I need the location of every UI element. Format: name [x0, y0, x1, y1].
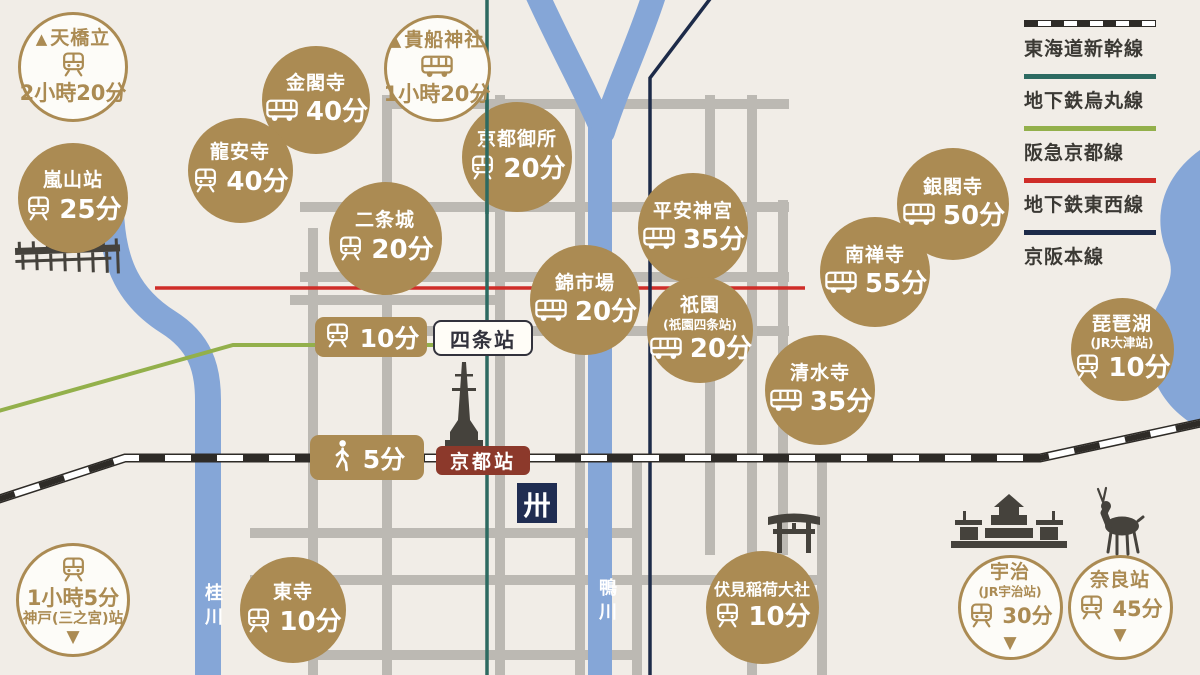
spot-heian: 平安神宮35分 [638, 173, 748, 283]
line-color-sample [1024, 178, 1156, 183]
legend: 東海道新幹線地下鉄烏丸線阪急京都線地下鉄東西線京阪本線 [1024, 20, 1156, 282]
spot-label: 伏見稲荷大社 [714, 581, 810, 599]
spot-kobe: 1小時5分神戸(三之宮)站▼ [16, 543, 130, 657]
shijo-station-label: 四条站 [433, 320, 533, 356]
spot-sublabel: (JR大津站) [1090, 336, 1153, 350]
train-icon [24, 195, 53, 226]
time-label: 20分 [371, 236, 433, 265]
spot-label: 東寺 [273, 582, 313, 603]
spot-sublabel: (JR宇治站) [978, 585, 1041, 599]
deer-icon [1098, 488, 1143, 554]
time-label: 10分 [1108, 354, 1170, 383]
spot-label: 平安神宮 [653, 201, 733, 222]
time-label: 10分 [748, 603, 810, 632]
time-label: 20分 [690, 335, 752, 364]
spot-amanohashidate: ▲天橋立2小時20分 [18, 12, 128, 122]
train-icon [191, 167, 220, 198]
legend-label: 地下鉄東西線 [1024, 190, 1156, 217]
train-icon [323, 322, 352, 353]
spot-sublabel: (祇園四条站) [663, 318, 737, 332]
time-label: 20分 [503, 155, 565, 184]
train-icon [468, 154, 497, 185]
kyoto-station-label: 京都站 [436, 446, 530, 475]
time-label: 35分 [683, 226, 745, 255]
down-triangle-icon: ▼ [1113, 627, 1126, 644]
katsura-river-label: 桂川 [199, 583, 225, 631]
spot-kifune: ▲貴船神社1小時20分 [384, 15, 491, 122]
spot-ryoanji: 龍安寺40分 [188, 118, 293, 223]
spot-label: 金閣寺 [286, 73, 346, 94]
torii-icon [768, 514, 820, 554]
time-label: 30分 [1002, 605, 1052, 629]
spot-label: 銀閣寺 [923, 177, 983, 198]
time-label: 10分 [279, 608, 341, 637]
shijo-train-time-badge: 10分 [315, 317, 427, 357]
kyoto-tower-icon [445, 362, 483, 448]
time-label: 1小時5分 [27, 587, 119, 611]
train-icon [1077, 594, 1106, 625]
time-label: 35分 [810, 388, 872, 417]
bus-icon [264, 97, 300, 127]
line-color-sample [1024, 74, 1156, 79]
temple-symbol: 卅 [517, 483, 557, 523]
spot-label: 二条城 [355, 210, 415, 231]
hankyu-line [0, 345, 500, 412]
spot-label: 南禅寺 [845, 245, 905, 266]
spot-label: 嵐山站 [43, 170, 103, 191]
bus-icon [641, 225, 677, 255]
mountain-icon: ▲ [390, 32, 403, 50]
spot-fushimi: 伏見稲荷大社10分 [706, 551, 819, 664]
kamo-river-right-branch [603, 0, 655, 132]
spot-label: 龍安寺 [210, 142, 270, 163]
legend-label: 阪急京都線 [1024, 138, 1156, 165]
time-label: 55分 [865, 270, 927, 299]
legend-label: 東海道新幹線 [1024, 34, 1156, 61]
spot-nijo: 二条城20分 [329, 182, 442, 295]
legend-label: 京阪本線 [1024, 242, 1156, 269]
kyoto-access-map: ▲天橋立2小時20分嵐山站25分金閣寺40分▲貴船神社1小時20分龍安寺40分京… [0, 0, 1200, 675]
time-label: 40分 [306, 98, 368, 127]
down-triangle-icon: ▼ [1003, 635, 1016, 652]
train-icon [336, 235, 365, 266]
legend-item-1: 東海道新幹線 [1024, 20, 1156, 61]
bus-icon [768, 387, 804, 417]
spot-uji: 宇治(JR宇治站)30分▼ [958, 555, 1063, 660]
spot-label: 宇治 [990, 562, 1030, 583]
spot-label: 琵琶湖 [1092, 314, 1152, 335]
spot-label: 錦市場 [555, 273, 615, 294]
time-label: 2小時20分 [20, 82, 127, 106]
spot-label: ▲貴船神社 [390, 30, 485, 51]
time-label: 50分 [943, 202, 1005, 231]
spot-nara: 奈良站45分▼ [1068, 555, 1173, 660]
time-label: 45分 [1112, 598, 1162, 622]
railway-line-sample [1024, 20, 1156, 27]
train-icon [59, 556, 88, 587]
line-color-sample [1024, 126, 1156, 131]
mountain-icon: ▲ [36, 30, 49, 48]
time-label: 25分 [59, 196, 121, 225]
legend-item-3: 阪急京都線 [1024, 126, 1156, 165]
train-icon [244, 607, 273, 638]
bus-icon [901, 201, 937, 231]
kyoto-walk-time-badge: 5分 [310, 435, 424, 480]
train-icon [1073, 353, 1102, 384]
kamo-river-label: 鴨川 [593, 578, 619, 626]
legend-label: 地下鉄烏丸線 [1024, 86, 1156, 113]
time-label: 40分 [226, 168, 288, 197]
spot-label: 京都御所 [477, 129, 557, 150]
time-label: 1小時20分 [384, 83, 491, 107]
spot-label: 奈良站 [1090, 570, 1150, 591]
spot-arashiyama: 嵐山站25分 [18, 143, 128, 253]
down-triangle-icon: ▼ [66, 629, 79, 646]
time-label: 20分 [575, 298, 637, 327]
bus-icon [648, 335, 684, 365]
spot-label: 祇園 [680, 295, 720, 316]
byodoin-temple-icon [951, 494, 1067, 548]
walk-time-label: 5分 [363, 440, 405, 476]
train-icon [713, 602, 742, 633]
bus-icon [533, 297, 569, 327]
spot-label: ▲天橋立 [36, 28, 111, 49]
legend-item-4: 地下鉄東西線 [1024, 178, 1156, 217]
bus-icon [823, 269, 859, 299]
spot-toji: 東寺10分 [240, 557, 346, 663]
bus-icon [419, 53, 455, 83]
spot-label: 清水寺 [790, 363, 850, 384]
spot-gion: 祇園(祇園四条站)20分 [647, 277, 753, 383]
spot-label: 神戸(三之宮)站 [23, 611, 123, 627]
walk-icon [329, 439, 355, 477]
spot-nishiki: 錦市場20分 [530, 245, 640, 355]
line-color-sample [1024, 230, 1156, 235]
train-icon [59, 51, 88, 82]
legend-item-2: 地下鉄烏丸線 [1024, 74, 1156, 113]
train-icon [967, 602, 996, 633]
spot-kiyomizu: 清水寺35分 [765, 335, 875, 445]
shijo-time-label: 10分 [360, 319, 420, 355]
spot-gosho: 京都御所20分 [462, 102, 572, 212]
legend-item-5: 京阪本線 [1024, 230, 1156, 269]
spot-ginkakuji: 銀閣寺50分 [897, 148, 1009, 260]
spot-biwako: 琵琶湖(JR大津站)10分 [1071, 298, 1174, 401]
